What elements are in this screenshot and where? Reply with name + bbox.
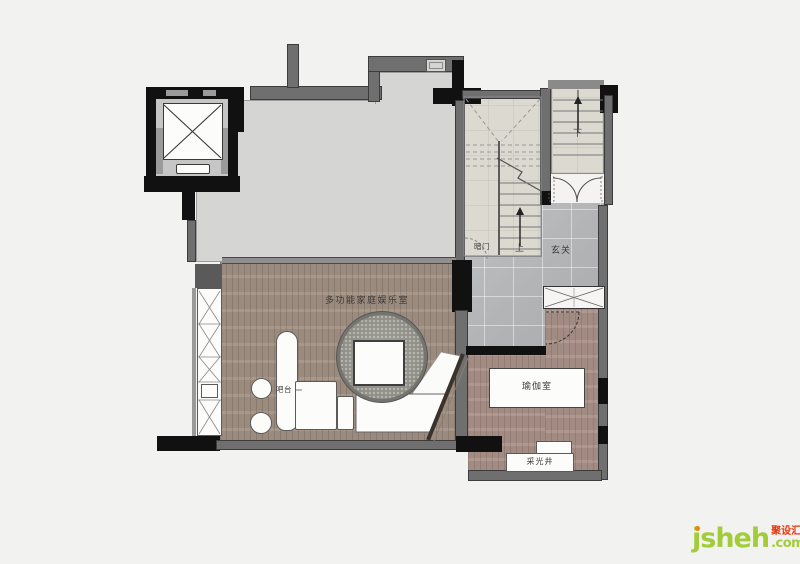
- elevator-wall-bottom: [144, 176, 240, 192]
- stair-hall-north-wall: [462, 90, 542, 99]
- foyer-label: 玄关: [546, 247, 576, 257]
- yoga-room-label: 瑜伽室: [489, 383, 585, 393]
- staircase-hall-floor: [462, 97, 542, 257]
- pier-above-wardrobe: [195, 264, 222, 288]
- watermark-dot-icon: [695, 526, 700, 531]
- bar-stool-1: [251, 378, 272, 399]
- south-black-junction: [456, 436, 502, 452]
- watermark-tld: .com: [771, 537, 800, 550]
- watermark: jsheh 聚设汇 .com: [692, 527, 800, 550]
- sofa-section-a: [295, 381, 337, 430]
- entertainment-room-label: 多功能家庭娱乐室: [315, 297, 419, 307]
- divider-storage-stair: [455, 100, 465, 262]
- outer-wall-above-downstair: [548, 80, 604, 89]
- foyer-cabinet: [543, 286, 605, 309]
- black-wall-main-foyer: [452, 260, 472, 312]
- sofa-section-b: [337, 396, 354, 430]
- floor-plan-canvas: 多功能家庭娱乐室 吧台 瑜伽室 玄关 暗门 上 下 采光井 jsheh 聚设汇 …: [0, 0, 800, 564]
- beam-main-room-north: [222, 257, 456, 264]
- bar-label: 吧台: [273, 386, 295, 394]
- north-wall-right: [368, 56, 464, 72]
- south-wall-main: [216, 440, 460, 450]
- elevator-counterweight: [176, 164, 210, 174]
- right-wall-black-seg2: [598, 426, 608, 444]
- bar-stool-2: [250, 412, 272, 434]
- double-door-threshold: [548, 174, 605, 203]
- right-wall-black-seg1: [598, 378, 608, 404]
- elevator-door-slot-2: [203, 90, 216, 96]
- left-wall-main-room: [192, 288, 196, 438]
- right-wall-upper: [604, 95, 613, 205]
- wall-stair-downstair: [540, 88, 551, 205]
- wardrobe: [197, 288, 222, 436]
- stairs-down-label: 下: [570, 130, 586, 140]
- elevator-wall-top: [146, 87, 238, 99]
- south-wall-black-left: [157, 436, 220, 451]
- wardrobe-inner-box: [201, 384, 218, 398]
- elevator-rail-left: [156, 128, 163, 174]
- door-jamb-left-black: [540, 191, 551, 205]
- left-wall-storage: [187, 220, 196, 262]
- stairs-up-label: 上: [511, 245, 529, 255]
- elevator-car: [163, 103, 223, 160]
- wall-stub-below-elevator: [182, 192, 195, 220]
- north-wall-niche: [426, 59, 446, 72]
- hidden-door-label: 暗门: [468, 243, 496, 251]
- coffee-table: [353, 340, 405, 386]
- watermark-brand: jsheh: [692, 528, 769, 550]
- elevator-wall-right: [227, 87, 244, 132]
- elevator-door-slot: [166, 90, 188, 96]
- north-wall-left: [250, 86, 382, 100]
- north-wall-stub: [287, 44, 299, 88]
- yoga-north-black-wall: [466, 346, 546, 355]
- wall-main-yoga: [455, 310, 468, 440]
- light-well-label: 采光井: [506, 458, 574, 467]
